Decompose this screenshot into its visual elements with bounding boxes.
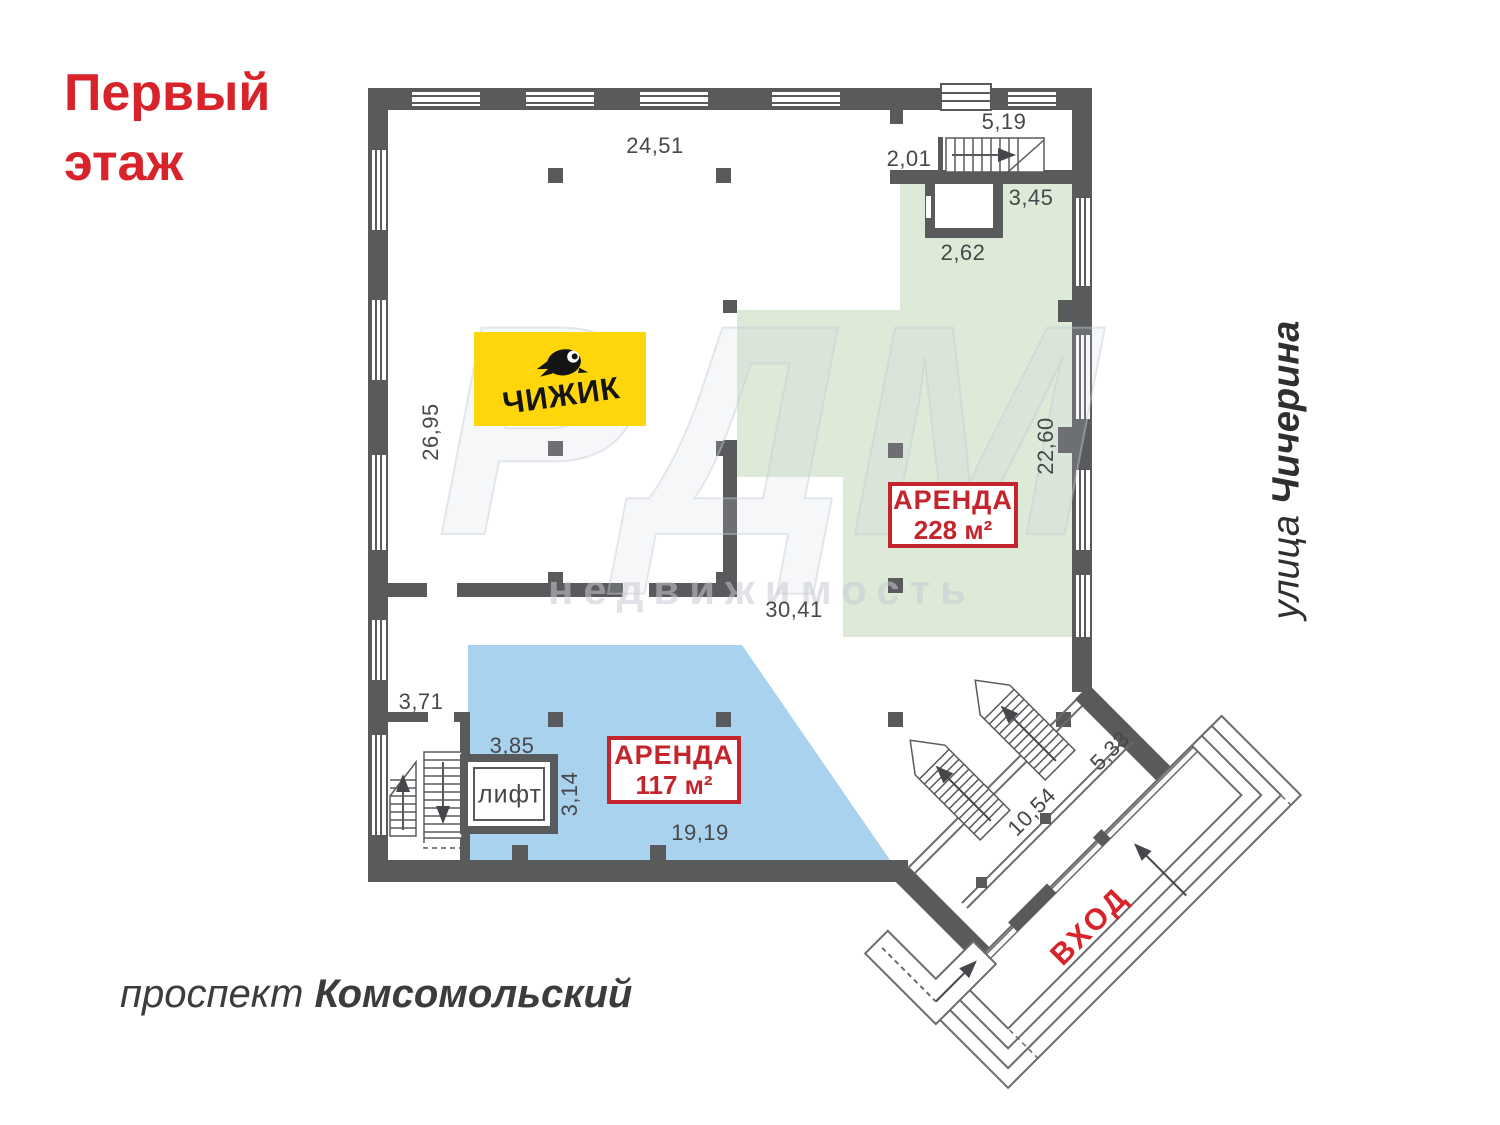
page-title: Первый этаж [64, 58, 270, 198]
dimension-label: 26,95 [418, 403, 444, 461]
dimension-label: 30,41 [765, 597, 823, 623]
rent-area: 228 м² [892, 516, 1014, 546]
elevator-label: лифт [478, 781, 542, 810]
floor-plan-page: ВХОД РДМ недвижимость Первый этаж 24,51 … [0, 0, 1500, 1125]
chizhik-logo-text: ЧИЖИК [500, 370, 622, 421]
street-komsomolsky: проспект Комсомольский [120, 972, 632, 1017]
dimension-label: 2,62 [941, 240, 986, 266]
street-name: Комсомольский [315, 972, 633, 1016]
dimension-label: 5,19 [982, 109, 1027, 135]
dimension-label: 3,14 [557, 772, 583, 817]
title-line-2: этаж [64, 128, 270, 198]
street-name: Чичерина [1266, 321, 1308, 505]
rent-label: АРЕНДА [892, 485, 1014, 516]
rent-label: АРЕНДА [611, 740, 737, 771]
chizhik-logo: ЧИЖИК [474, 332, 646, 426]
staircase-top-right [946, 138, 1044, 172]
rent-area: 117 м² [611, 771, 737, 801]
dimension-label: 3,45 [1009, 185, 1054, 211]
dimension-label: 3,85 [490, 733, 535, 759]
street-prefix: проспект [120, 972, 315, 1016]
entrance-porch: ВХОД [925, 712, 1300, 1087]
green-alcove [925, 184, 1003, 238]
street-chicherina: улица Чичерина [1266, 321, 1309, 620]
dimension-label: 22,60 [1033, 417, 1059, 475]
dimension-label: 3,71 [399, 689, 444, 715]
rent-badge-117: АРЕНДА 117 м² [607, 736, 741, 804]
rent-area-228-region [737, 184, 1077, 637]
staircase-bottom-left [390, 752, 462, 848]
dimension-label: 19,19 [671, 820, 729, 846]
street-prefix: улица [1266, 504, 1308, 619]
dimension-label: 2,01 [887, 146, 932, 172]
dimension-label: 24,51 [626, 133, 684, 159]
title-line-1: Первый [64, 58, 270, 128]
rent-badge-228: АРЕНДА 228 м² [888, 482, 1018, 548]
chizhik-bird-icon: ЧИЖИК [474, 332, 646, 426]
